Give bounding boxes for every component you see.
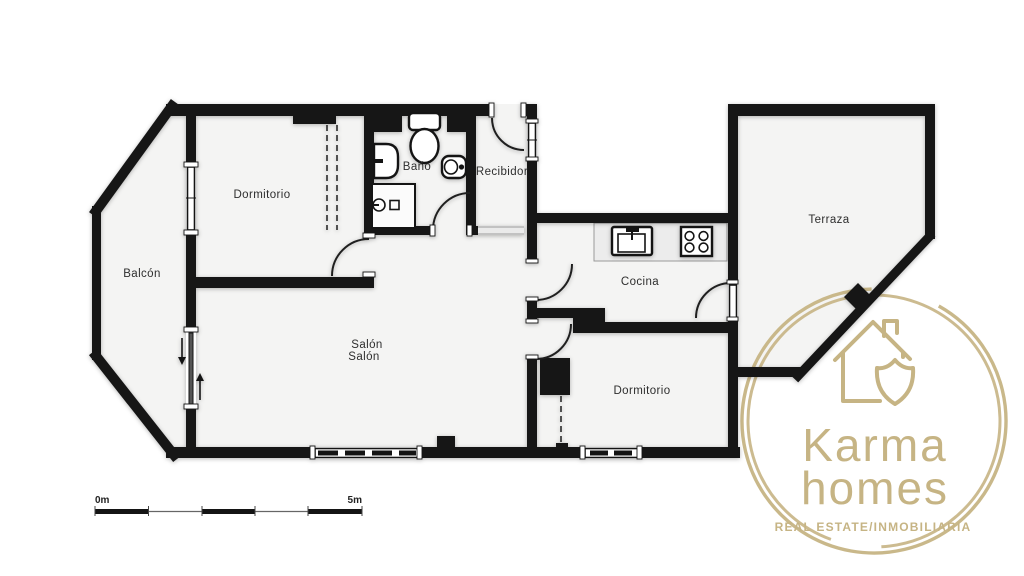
room-label-salon-line1: Salón [351,339,382,351]
window-salon [313,447,420,459]
stove-icon [681,227,712,256]
room-label-salon-line2: Salón [348,351,379,363]
bidet-icon [442,156,466,178]
logo-tagline: REAL ESTATE/INMOBILIARIA [775,520,972,534]
house-shield-icon [835,321,913,404]
washbasin-icon [374,144,398,178]
room-label-recibidor: Recibidor [476,166,528,178]
scale-start-label: 0m [95,495,110,506]
shower-icon [371,184,415,228]
room-label-dormitorio-2: Dormitorio [613,385,670,397]
threshold-opening [478,226,524,235]
kitchen-sink-icon [612,227,652,255]
door-cocina-terraza-glass [728,283,738,320]
room-label-balcon: Balcón [123,268,161,280]
window-dormitorio1-balcon [186,165,196,232]
floor-terraza [733,109,930,372]
toilet-icon [409,113,440,163]
scale-bar: 0m 5m [95,495,362,516]
logo-brand-line2: homes [801,462,949,514]
scale-end-label: 5m [348,495,363,506]
window-recibidor [527,121,537,160]
room-label-dormitorio-1: Dormitorio [233,189,290,201]
window-dormitorio2 [583,447,640,459]
room-label-terraza: Terraza [808,214,849,226]
floorplan-svg: Karma homes REAL ESTATE/INMOBILIARIA [0,0,1024,576]
room-label-cocina: Cocina [621,276,659,288]
room-label-bano: Baño [403,161,431,173]
floorplan-canvas: Karma homes REAL ESTATE/INMOBILIARIA [0,0,1024,576]
